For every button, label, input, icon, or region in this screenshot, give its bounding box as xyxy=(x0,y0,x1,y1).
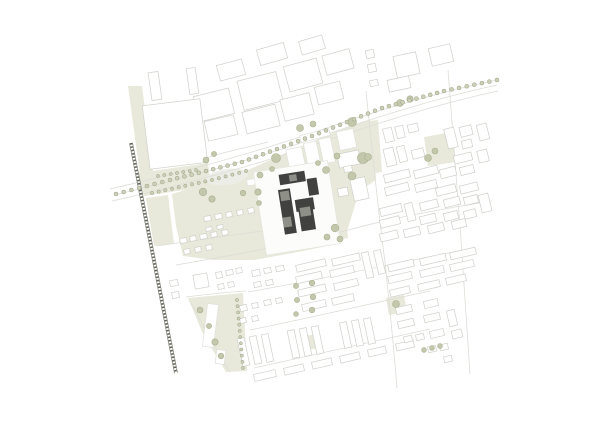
context-building xyxy=(451,329,463,339)
context-building xyxy=(190,236,197,242)
context-building xyxy=(237,210,244,216)
context-building xyxy=(296,271,323,284)
context-building xyxy=(334,278,359,290)
context-building xyxy=(216,59,245,81)
context-building xyxy=(445,274,466,285)
tree xyxy=(310,294,316,300)
tree xyxy=(331,224,339,232)
street-tree xyxy=(238,329,241,332)
context-building xyxy=(276,265,285,272)
street-tree xyxy=(282,144,286,148)
street-tree xyxy=(241,366,244,369)
tree xyxy=(294,312,299,317)
context-building xyxy=(172,291,180,298)
context-building xyxy=(415,333,424,341)
context-building xyxy=(217,225,224,230)
street-tree xyxy=(194,168,197,171)
street-tree xyxy=(465,84,469,88)
street-tree xyxy=(268,150,272,154)
street-tree xyxy=(218,165,222,169)
tree xyxy=(203,157,209,163)
street-tree xyxy=(450,87,454,91)
context-building xyxy=(363,318,375,345)
context-building xyxy=(420,265,445,277)
street-tree xyxy=(157,190,160,193)
context-building xyxy=(222,230,229,236)
context-building xyxy=(361,252,374,279)
context-building xyxy=(420,253,447,266)
context-building xyxy=(423,299,438,309)
street-tree xyxy=(435,91,439,95)
context-building xyxy=(459,125,473,138)
context-building xyxy=(226,212,233,218)
context-building xyxy=(367,63,376,72)
context-building xyxy=(414,179,437,192)
tree xyxy=(297,125,304,132)
site-roof-terrace xyxy=(300,206,312,217)
street-tree xyxy=(236,305,239,308)
site-roof-terrace xyxy=(280,190,290,201)
tree xyxy=(240,190,246,196)
street-tree xyxy=(210,178,213,181)
tree xyxy=(309,307,315,313)
context-building xyxy=(276,297,283,303)
street-tree xyxy=(182,174,186,178)
street-tree xyxy=(261,152,265,156)
context-building xyxy=(332,253,361,266)
street-tree xyxy=(170,187,173,190)
tree xyxy=(348,172,356,180)
context-building xyxy=(200,233,208,239)
tree xyxy=(293,283,298,288)
street-tree xyxy=(211,167,215,171)
street-tree xyxy=(414,97,418,101)
street-tree xyxy=(145,184,149,188)
context-building xyxy=(193,273,209,289)
context-building xyxy=(365,49,374,58)
context-building xyxy=(249,336,262,365)
site-plan-figure xyxy=(0,0,600,424)
tree xyxy=(422,348,427,353)
context-building xyxy=(463,209,477,220)
street-tree xyxy=(239,336,242,339)
tree xyxy=(438,344,443,349)
street-tree xyxy=(338,123,342,127)
street-tree xyxy=(310,134,314,138)
context-building xyxy=(216,272,223,279)
context-building xyxy=(339,352,360,363)
context-building xyxy=(476,123,490,141)
context-building xyxy=(459,164,475,175)
street-tree xyxy=(238,323,241,326)
green-area xyxy=(146,195,174,246)
street-tree xyxy=(238,171,241,174)
context-building xyxy=(215,213,223,219)
street-tree xyxy=(237,317,240,320)
tree xyxy=(206,323,211,328)
context-building xyxy=(218,284,225,290)
street-tree xyxy=(168,178,172,182)
context-building xyxy=(283,364,304,375)
street-tree xyxy=(235,298,238,301)
context-building xyxy=(184,249,191,255)
context-building xyxy=(379,203,402,216)
context-building xyxy=(331,294,354,306)
street-tree xyxy=(317,131,321,135)
tree xyxy=(270,167,275,172)
context-building xyxy=(393,52,420,78)
context-building xyxy=(266,279,274,285)
context-building xyxy=(384,182,409,196)
context-building xyxy=(369,79,378,87)
context-building xyxy=(446,309,457,326)
street-tree xyxy=(114,192,118,196)
street-tree xyxy=(345,120,349,124)
street-tree xyxy=(175,176,179,180)
street-tree xyxy=(457,86,461,90)
context-building xyxy=(228,282,235,288)
context-building xyxy=(311,358,332,369)
street-tree xyxy=(289,142,293,146)
street-tree xyxy=(156,174,159,177)
context-building xyxy=(252,302,259,308)
street-tree xyxy=(231,173,234,176)
context-building xyxy=(204,215,212,221)
context-building xyxy=(254,281,262,287)
street-tree xyxy=(380,106,384,110)
tree xyxy=(257,172,263,178)
tree xyxy=(294,297,299,302)
context-building xyxy=(251,269,260,277)
tree xyxy=(197,307,203,313)
context-building xyxy=(423,312,440,322)
street-tree xyxy=(247,157,251,161)
street-tree xyxy=(160,180,164,184)
context-building xyxy=(395,125,406,139)
tree xyxy=(199,188,207,196)
tree xyxy=(257,201,262,206)
street-tree xyxy=(352,117,356,121)
street-tree xyxy=(366,112,370,116)
tree xyxy=(334,153,340,159)
context-building xyxy=(403,335,412,343)
context-building xyxy=(180,237,188,243)
street-tree xyxy=(401,100,405,104)
context-building xyxy=(287,330,300,359)
street-tree xyxy=(188,169,191,172)
context-building xyxy=(351,320,363,347)
park-building xyxy=(336,128,357,150)
street-tree xyxy=(240,348,243,351)
context-building xyxy=(330,265,355,277)
street-tree xyxy=(359,114,363,118)
street-tree xyxy=(254,155,258,159)
tree xyxy=(430,346,435,351)
context-building xyxy=(451,218,467,229)
street-tree xyxy=(153,182,157,186)
street-tree xyxy=(233,162,237,166)
context-building xyxy=(463,194,479,205)
site-roof-terrace xyxy=(289,174,297,182)
street-tree xyxy=(197,171,201,175)
street-tree xyxy=(237,311,240,314)
context-building xyxy=(403,226,420,238)
context-building xyxy=(443,355,452,363)
tree xyxy=(432,148,438,154)
context-building xyxy=(379,230,398,242)
street-tree xyxy=(373,109,377,113)
context-building xyxy=(450,247,477,260)
context-building xyxy=(419,199,438,211)
context-building xyxy=(337,187,348,197)
context-building xyxy=(407,123,419,133)
street-tree xyxy=(169,172,172,175)
street-tree xyxy=(190,173,194,177)
context-building xyxy=(264,299,272,305)
tree xyxy=(310,121,316,127)
context-building xyxy=(428,44,453,66)
street-tree xyxy=(182,170,185,173)
context-building xyxy=(142,99,207,170)
context-building xyxy=(253,370,276,382)
context-building xyxy=(404,202,416,221)
context-building xyxy=(206,245,213,251)
site-cluster xyxy=(253,161,340,256)
tree xyxy=(337,236,343,242)
context-building xyxy=(211,232,218,238)
street-tree xyxy=(275,147,279,151)
context-building xyxy=(206,227,213,232)
context-building xyxy=(195,247,202,253)
context-building xyxy=(389,286,410,297)
context-building xyxy=(226,269,234,275)
tree xyxy=(212,339,218,345)
street-tree xyxy=(240,160,244,164)
context-building xyxy=(478,193,492,213)
street-tree xyxy=(226,164,230,168)
context-building xyxy=(453,152,472,164)
context-building xyxy=(396,145,408,162)
tree xyxy=(209,196,215,202)
context-building xyxy=(419,213,436,225)
street-tree xyxy=(324,128,328,132)
tree xyxy=(218,353,224,359)
context-building xyxy=(379,216,400,229)
context-building xyxy=(388,259,415,272)
context-building xyxy=(261,334,274,363)
tree xyxy=(425,155,432,162)
tree xyxy=(365,154,372,161)
context-building xyxy=(186,68,199,95)
context-building xyxy=(388,271,413,283)
street-tree xyxy=(421,95,425,99)
context-building xyxy=(429,329,444,339)
context-building xyxy=(339,322,351,349)
street-tree xyxy=(197,181,200,184)
context-building xyxy=(450,259,475,271)
site-roof-terrace xyxy=(282,216,292,227)
context-building xyxy=(443,210,459,221)
street-tree xyxy=(480,81,484,85)
street-tree xyxy=(204,180,207,183)
site-plan-map xyxy=(0,0,600,424)
context-building xyxy=(459,182,478,194)
street-tree xyxy=(472,83,476,87)
tree xyxy=(393,301,400,308)
context-building xyxy=(322,49,354,76)
context-building xyxy=(256,42,287,65)
context-building xyxy=(383,169,410,183)
context-building xyxy=(296,259,327,273)
street-tree xyxy=(175,171,178,174)
street-tree xyxy=(177,186,180,189)
tree xyxy=(272,154,281,163)
tree xyxy=(255,189,261,195)
street-tree xyxy=(303,137,307,141)
context-building xyxy=(427,222,444,234)
context-building xyxy=(264,267,272,273)
context-building xyxy=(252,315,259,321)
street-tree xyxy=(296,139,300,143)
street-tree xyxy=(150,191,153,194)
context-building xyxy=(236,268,243,274)
street-tree xyxy=(184,184,187,187)
context-building xyxy=(435,184,456,197)
context-building xyxy=(148,71,162,100)
street-tree xyxy=(428,93,432,97)
context-building xyxy=(248,208,255,214)
context-building xyxy=(367,346,386,357)
context-building xyxy=(382,127,394,143)
street-tree xyxy=(244,169,247,172)
context-building xyxy=(387,76,411,92)
context-building xyxy=(299,35,326,55)
street-tree xyxy=(240,354,243,357)
street-tree xyxy=(442,89,446,93)
street-tree xyxy=(164,188,167,191)
street-tree xyxy=(129,188,133,192)
context-building xyxy=(237,72,283,111)
street-tree xyxy=(331,126,335,130)
context-building xyxy=(413,165,438,179)
context-building xyxy=(461,139,473,149)
tree xyxy=(309,280,315,286)
context-building xyxy=(477,149,490,163)
context-building xyxy=(383,147,397,167)
street-tree xyxy=(487,80,491,84)
street-tree xyxy=(495,78,499,82)
context-building xyxy=(280,93,314,122)
context-building xyxy=(417,280,440,292)
street-tree xyxy=(224,175,227,178)
tree xyxy=(323,167,330,174)
context-building xyxy=(397,318,414,328)
street-tree xyxy=(239,342,242,345)
street-tree xyxy=(408,98,412,102)
street-tree xyxy=(217,177,220,180)
street-tree xyxy=(204,169,208,173)
tree xyxy=(316,161,321,166)
street-tree xyxy=(394,102,398,106)
context-building xyxy=(239,304,247,311)
street-tree xyxy=(122,190,126,194)
tree xyxy=(324,234,330,240)
street-tree xyxy=(163,173,166,176)
context-building xyxy=(343,165,352,173)
street-tree xyxy=(137,186,141,190)
street-tree xyxy=(241,360,244,363)
tree xyxy=(211,151,216,156)
context-building xyxy=(411,148,425,160)
context-building xyxy=(240,317,247,323)
street-tree xyxy=(190,183,193,186)
context-building xyxy=(314,81,344,105)
context-building xyxy=(170,279,179,286)
street-tree xyxy=(387,104,391,108)
context-building xyxy=(439,166,457,179)
